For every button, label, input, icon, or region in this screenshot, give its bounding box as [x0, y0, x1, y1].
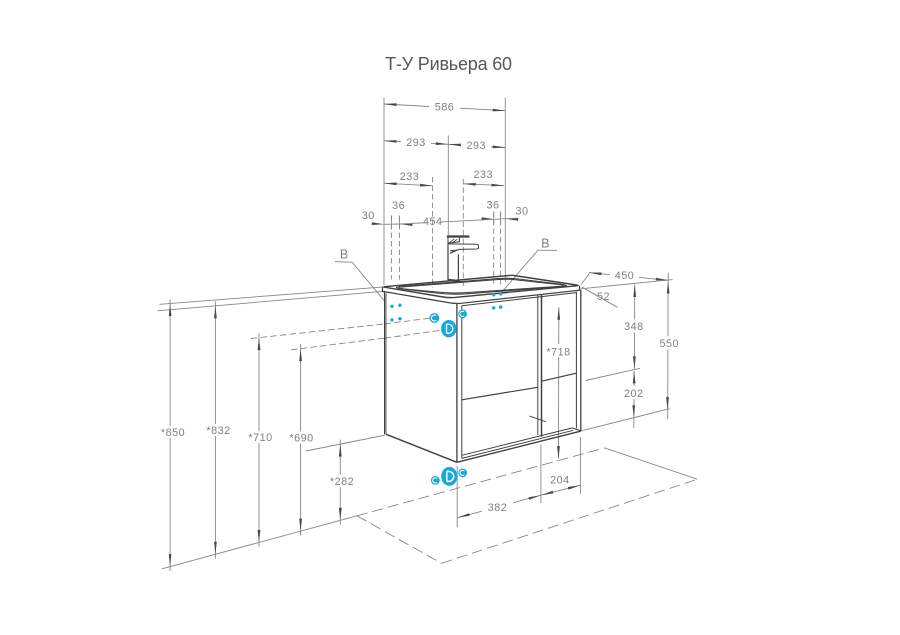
svg-text:B: B [340, 247, 349, 261]
svg-text:586: 586 [435, 101, 455, 113]
svg-text:36: 36 [392, 200, 405, 212]
svg-text:*832: *832 [206, 425, 230, 437]
svg-text:293: 293 [466, 140, 486, 152]
svg-text:Т-У Ривьера 60: Т-У Ривьера 60 [385, 54, 512, 74]
svg-text:348: 348 [624, 321, 644, 333]
svg-text:293: 293 [406, 137, 426, 149]
svg-text:550: 550 [660, 338, 680, 350]
svg-text:233: 233 [400, 171, 420, 183]
svg-text:*282: *282 [330, 476, 354, 488]
svg-text:450: 450 [615, 270, 635, 282]
svg-text:233: 233 [474, 169, 494, 181]
svg-text:*690: *690 [289, 433, 313, 445]
svg-text:B: B [541, 236, 550, 250]
svg-text:52: 52 [597, 291, 610, 303]
svg-text:454: 454 [423, 216, 443, 228]
svg-text:36: 36 [486, 200, 499, 212]
svg-text:*718: *718 [546, 346, 570, 358]
svg-text:*850: *850 [161, 427, 185, 439]
svg-text:30: 30 [515, 205, 528, 217]
svg-text:204: 204 [550, 474, 570, 486]
svg-text:202: 202 [624, 388, 644, 400]
svg-text:*710: *710 [248, 432, 272, 444]
svg-text:382: 382 [488, 502, 508, 514]
svg-text:30: 30 [362, 210, 375, 222]
